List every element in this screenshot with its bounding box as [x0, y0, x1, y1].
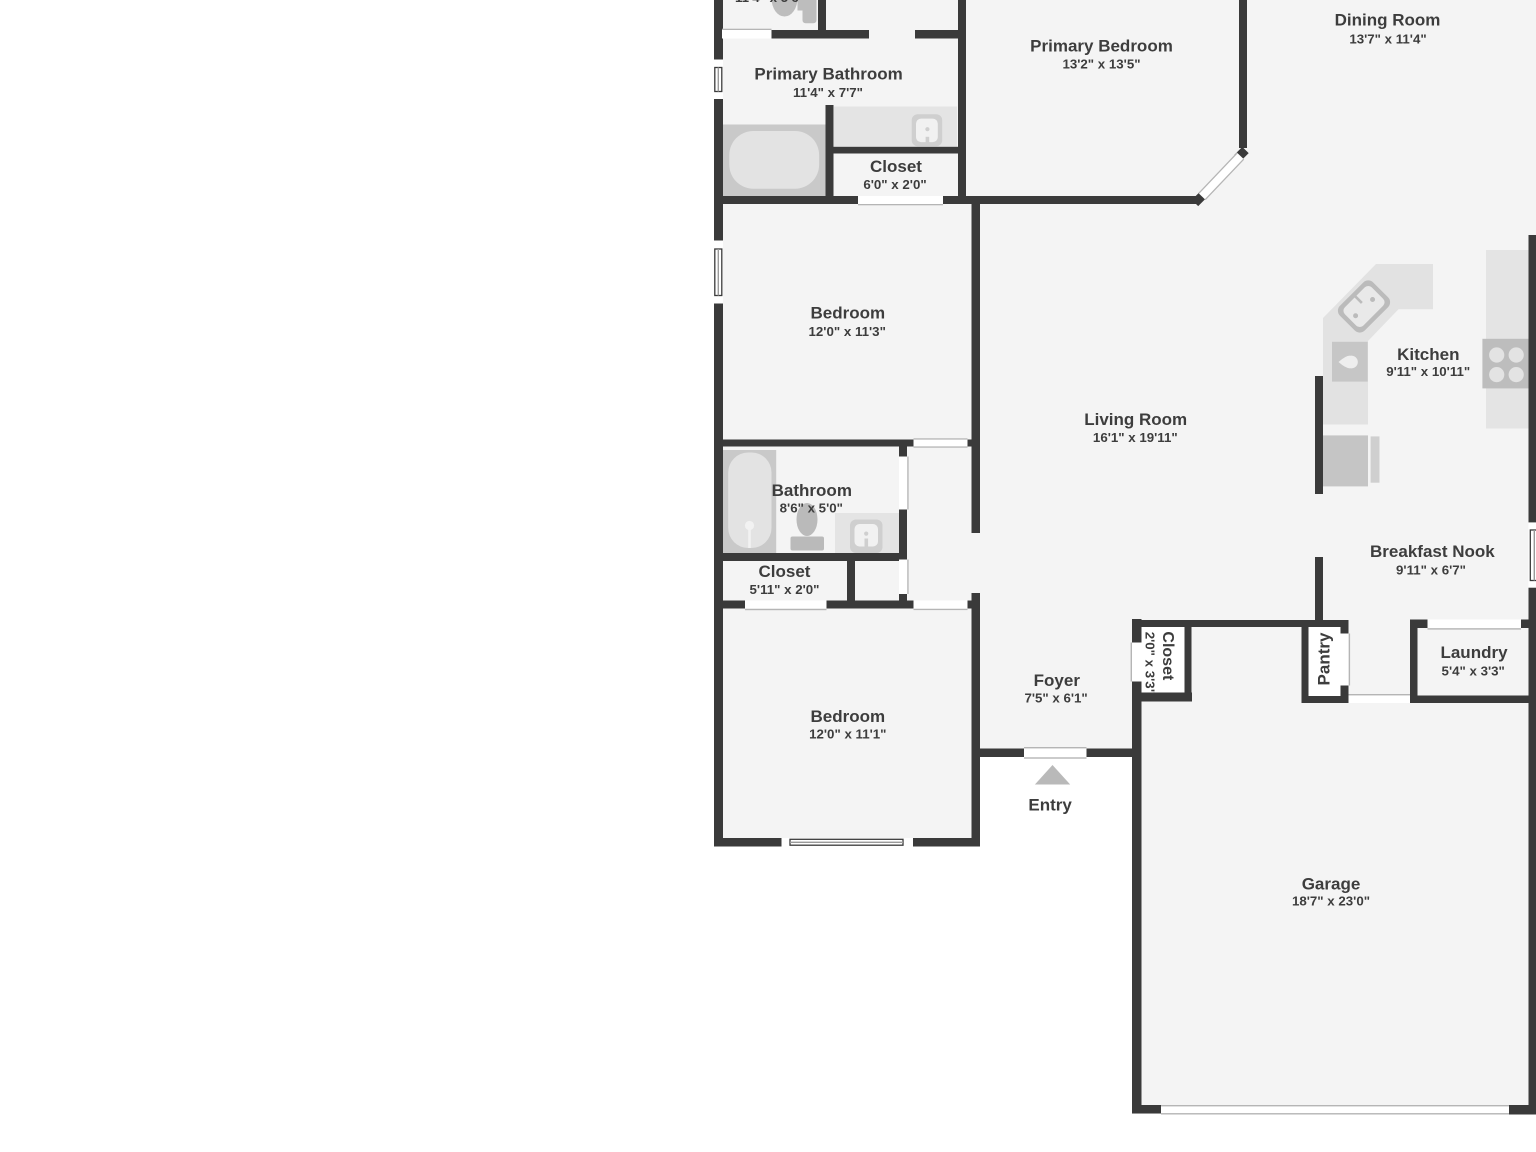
svg-text:16'1" x 19'11": 16'1" x 19'11": [1093, 430, 1178, 445]
svg-text:12'0" x 11'1": 12'0" x 11'1": [809, 727, 886, 742]
svg-text:Bathroom: Bathroom: [772, 481, 852, 500]
svg-text:13'2" x 13'5": 13'2" x 13'5": [1062, 56, 1140, 71]
svg-text:Bedroom: Bedroom: [810, 304, 885, 323]
svg-text:9'11" x 10'11": 9'11" x 10'11": [1386, 364, 1470, 379]
svg-text:Closet: Closet: [1159, 631, 1176, 681]
svg-text:Bedroom: Bedroom: [810, 707, 885, 726]
svg-text:2'0" x 3'3": 2'0" x 3'3": [1143, 632, 1158, 695]
svg-text:Laundry: Laundry: [1440, 643, 1508, 662]
svg-text:12'0" x 11'3": 12'0" x 11'3": [809, 324, 886, 339]
svg-text:Breakfast Nook: Breakfast Nook: [1370, 542, 1495, 561]
svg-text:13'7" x 11'4": 13'7" x 11'4": [1349, 32, 1426, 47]
svg-text:Dining Room: Dining Room: [1335, 10, 1441, 29]
svg-text:Closet: Closet: [870, 157, 922, 176]
svg-text:6'0" x 2'0": 6'0" x 2'0": [863, 177, 926, 192]
svg-text:Primary Bathroom: Primary Bathroom: [754, 65, 902, 84]
svg-text:5'4" x 3'3": 5'4" x 3'3": [1442, 663, 1505, 678]
svg-text:Kitchen: Kitchen: [1397, 345, 1459, 364]
svg-text:Living Room: Living Room: [1084, 410, 1187, 429]
svg-text:11'4" x 5'6": 11'4" x 5'6": [735, 0, 805, 5]
svg-text:Foyer: Foyer: [1034, 671, 1081, 690]
svg-text:Closet: Closet: [759, 562, 811, 581]
svg-text:Pantry: Pantry: [1315, 632, 1334, 685]
svg-text:9'11" x 6'7": 9'11" x 6'7": [1396, 563, 1466, 578]
svg-text:Primary Bedroom: Primary Bedroom: [1030, 37, 1173, 56]
svg-text:8'6" x 5'0": 8'6" x 5'0": [780, 501, 843, 516]
svg-text:11'4" x 7'7": 11'4" x 7'7": [793, 85, 863, 100]
svg-text:Garage: Garage: [1302, 875, 1361, 894]
svg-text:5'11" x 2'0": 5'11" x 2'0": [750, 582, 820, 597]
svg-text:Entry: Entry: [1028, 795, 1072, 814]
svg-text:7'5" x 6'1": 7'5" x 6'1": [1024, 690, 1087, 705]
svg-text:18'7" x 23'0": 18'7" x 23'0": [1292, 894, 1370, 909]
